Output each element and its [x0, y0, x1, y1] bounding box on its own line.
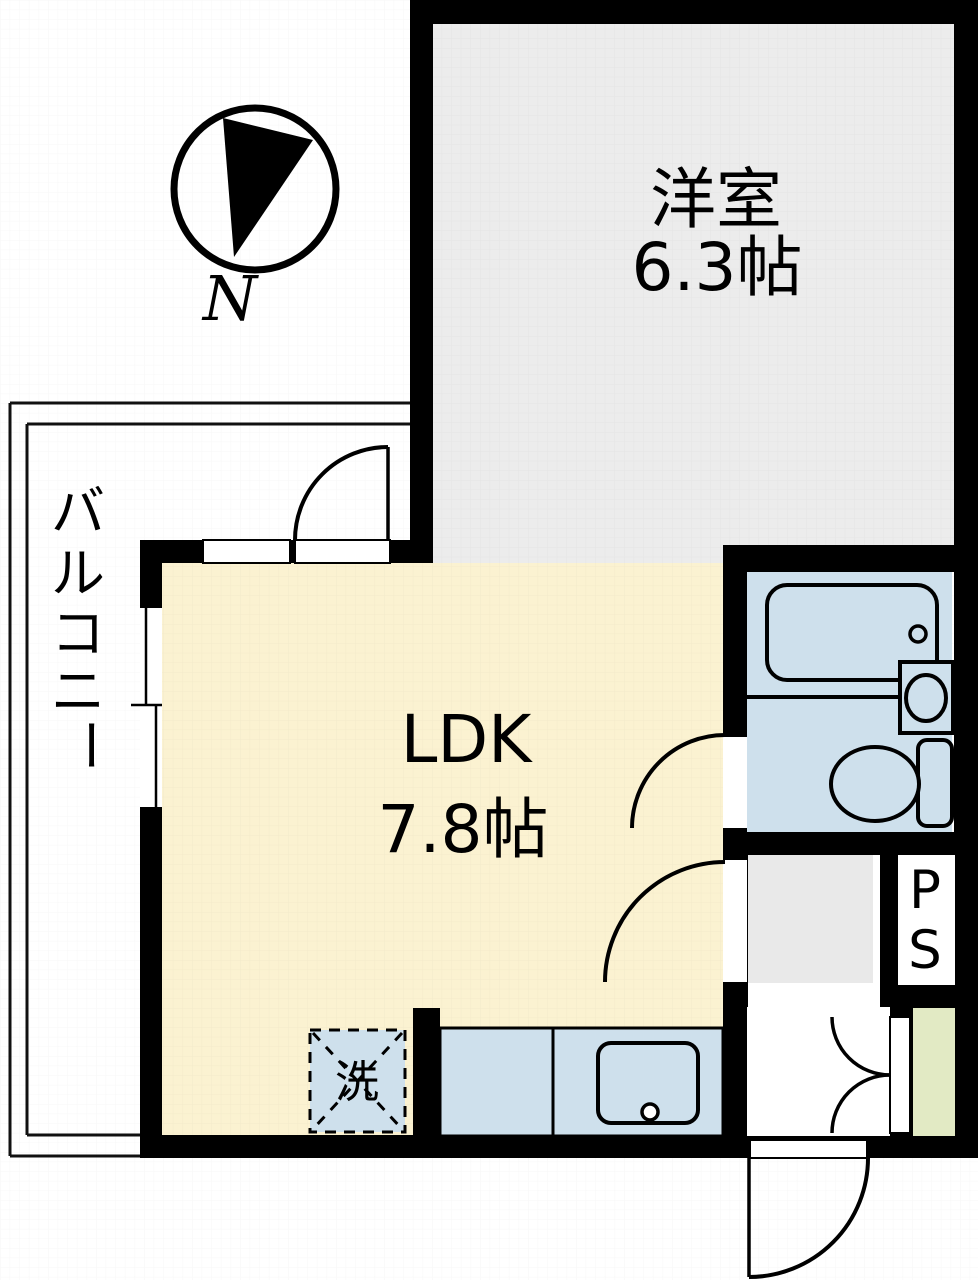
balcony-label-char-4: ニ [51, 660, 105, 723]
washer-label: 洗 [335, 1057, 379, 1108]
ps-label-s: S [908, 920, 942, 981]
entrance-step [913, 1008, 955, 1136]
closet-front-strip [748, 983, 873, 1007]
balcony-label-char-1: バ [51, 480, 105, 543]
western-room-size: 6.3帖 [632, 229, 803, 306]
hallway-door-opening [723, 860, 747, 982]
closet-floor [748, 855, 873, 983]
wall-bath-top [723, 545, 978, 572]
balcony-label-char-3: コ [51, 602, 105, 665]
window-opening [140, 608, 162, 807]
ps-label-p: P [909, 860, 941, 921]
washer-space: 洗 [310, 1030, 405, 1132]
north-label: N [201, 262, 260, 335]
balcony-label-char-2: ル [51, 542, 105, 605]
western-room-name: 洋室 [650, 161, 782, 238]
kitchen [440, 1028, 723, 1136]
toilet-bowl [831, 747, 919, 821]
balcony-label-char-5: ー [58, 718, 121, 772]
wall-top [410, 0, 978, 24]
ldk-north-door-opening-left [203, 540, 290, 563]
hall-sliver [873, 855, 880, 1007]
floor-plan: 洗 N 洋室 6.3帖 LDK 7.8帖 バ ル コ ニ ー P S [0, 0, 978, 1280]
kitchen-sink-drain [642, 1104, 658, 1120]
floor-plan-page: 洗 N 洋室 6.3帖 LDK 7.8帖 バ ル コ ニ ー P S [0, 0, 978, 1280]
ldk-size: 7.8帖 [378, 791, 549, 868]
toilet-tank [918, 740, 952, 826]
wall-kitchen-stub [413, 1008, 440, 1137]
bathroom-door-opening [723, 737, 747, 828]
pipe-space-label: P S [908, 860, 942, 981]
ldk-name: LDK [401, 701, 534, 778]
entrance-door-opening [750, 1140, 867, 1158]
ldk-north-door-opening-right [295, 540, 390, 563]
wall-western-left [410, 0, 433, 563]
double-door-leaf [890, 1017, 910, 1133]
